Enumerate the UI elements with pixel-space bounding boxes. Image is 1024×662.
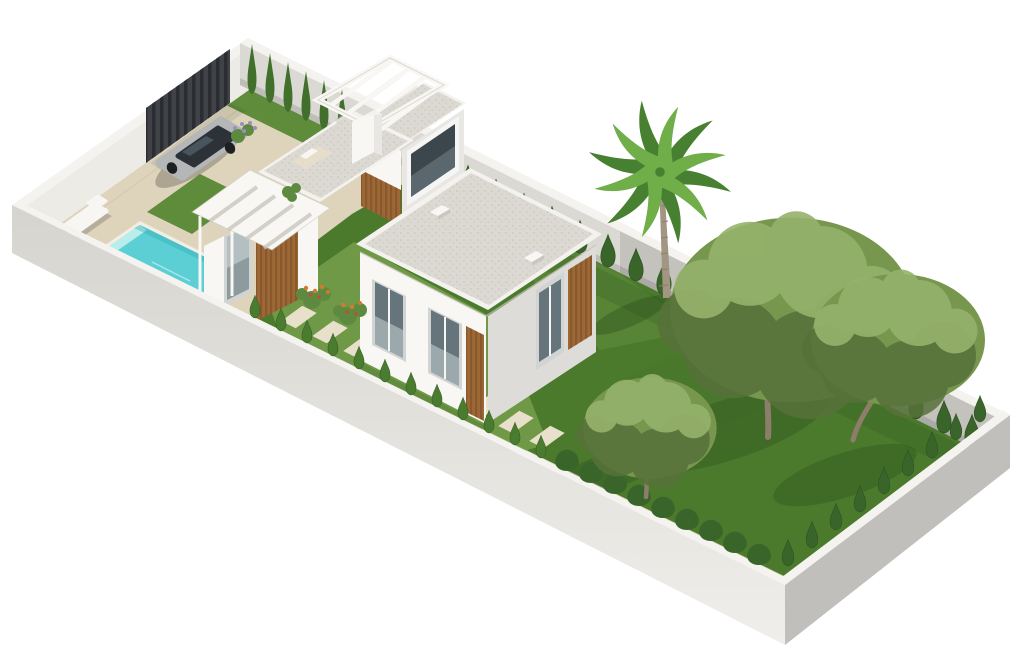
sw-wood-slats [466,326,484,421]
site-plan-render [0,0,1024,662]
palm-crown-center [655,167,665,177]
palm-crown [589,101,731,244]
chimney-side [374,110,382,156]
se-wood-slats [568,255,592,350]
